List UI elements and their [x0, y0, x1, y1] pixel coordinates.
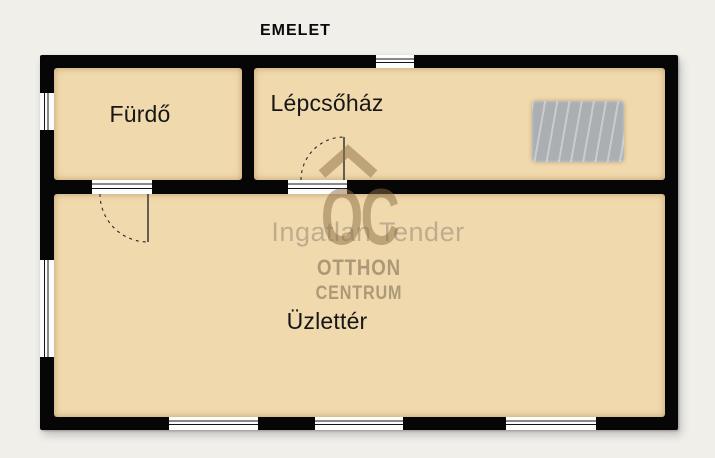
- window-left-2: [40, 260, 54, 357]
- window-left-1: [40, 93, 54, 130]
- window-bottom-2: [315, 417, 403, 430]
- window-bottom-3: [506, 417, 596, 430]
- window-top: [376, 55, 414, 68]
- room-label-lepcsohaz: Lépcsőház: [227, 90, 427, 116]
- room-label-furdo: Fürdő: [60, 101, 220, 127]
- stairs: [532, 101, 624, 162]
- page-title: EMELET: [260, 22, 331, 40]
- door-opening-furdo: [92, 180, 152, 194]
- window-bottom-1: [169, 417, 258, 430]
- floor-plan: Fürdő Lépcsőház Üzlettér: [40, 55, 678, 430]
- room-uzletter: [54, 194, 665, 417]
- door-opening-lepcsohaz: [288, 180, 347, 194]
- room-label-uzletter: Üzlettér: [227, 308, 427, 334]
